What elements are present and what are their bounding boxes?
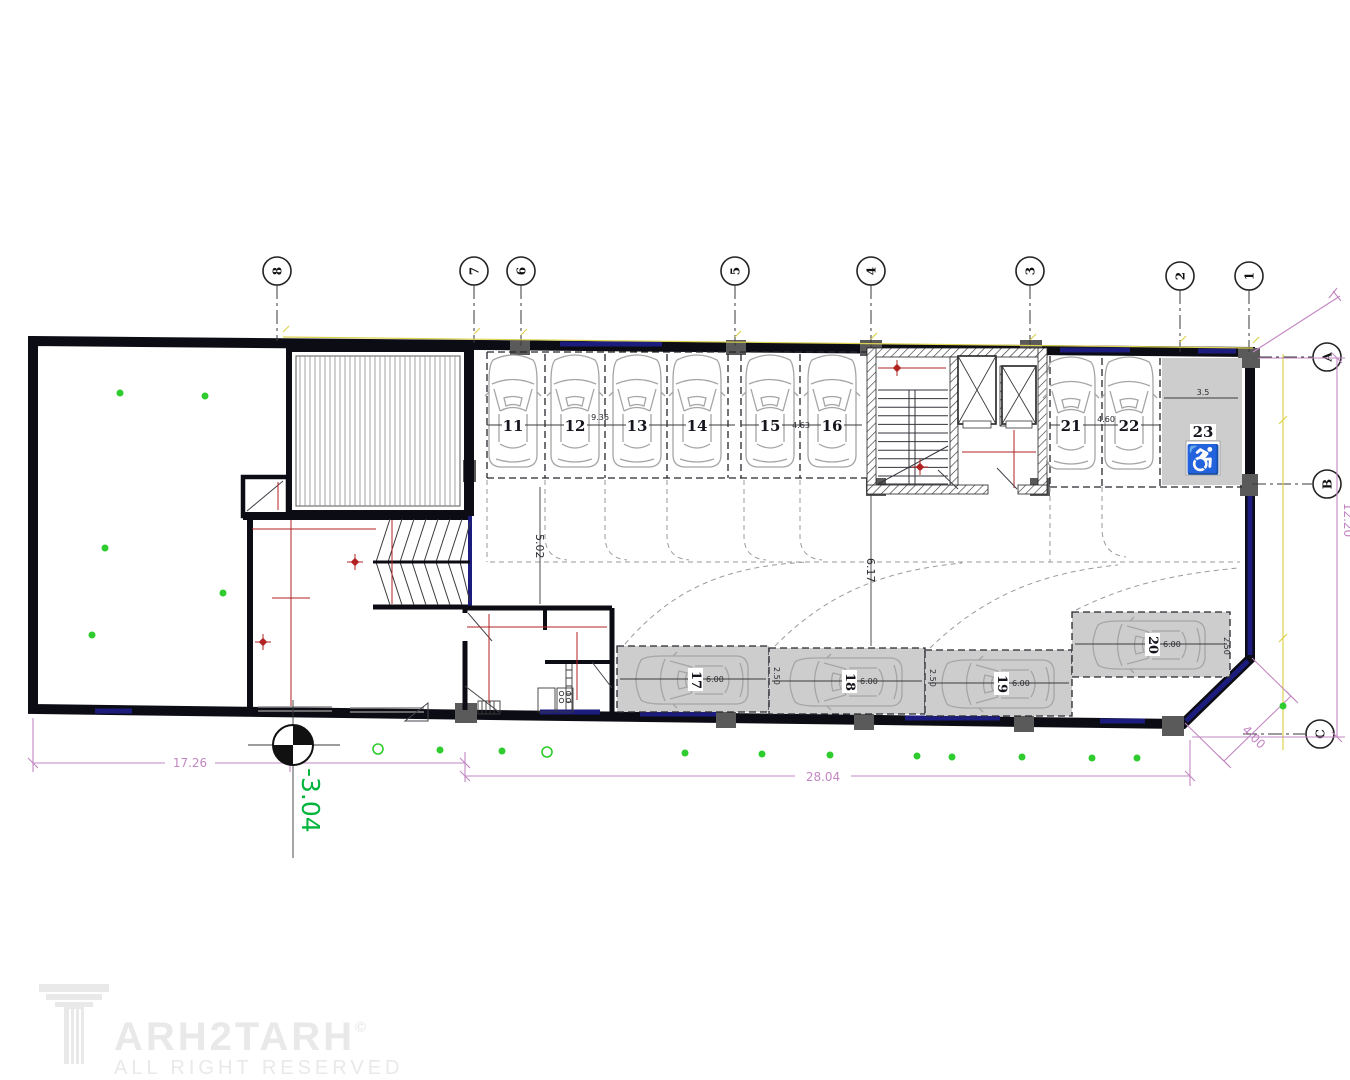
grid-label: 7 xyxy=(468,267,482,275)
spot-number: 19 xyxy=(994,675,1009,693)
spot-number: 20 xyxy=(1145,636,1160,654)
spot-number: 12 xyxy=(565,417,586,435)
spot-number: 21 xyxy=(1061,417,1082,435)
parking-top-row: 11 12 13 14 15 16 9.36 4.63 xyxy=(485,352,867,478)
parking-spot-22: 22 xyxy=(1118,417,1141,435)
parking-spot-14: 14 xyxy=(686,417,709,435)
grid-label: 6 xyxy=(515,267,529,275)
dim-stall-width: 2.50 xyxy=(1222,637,1231,655)
spot-number: 23 xyxy=(1193,423,1214,441)
parking-spot-19: 19 6.00 2.50 xyxy=(925,650,1072,716)
parking-spot-15: 15 xyxy=(759,417,782,435)
kitchen-fixtures xyxy=(538,688,573,712)
dim-bay-23: 3.5 xyxy=(1197,388,1210,397)
middle-room-dims xyxy=(252,520,376,706)
floor-plan-page: 11 12 13 14 15 16 9.36 4.63 21 22 4.60 3… xyxy=(0,0,1350,1080)
interior-dimensions: 5.02 6.17 xyxy=(533,487,877,646)
grid-label: 2 xyxy=(1174,272,1188,280)
spot-number: 14 xyxy=(687,417,708,435)
dim-bay-15-16: 4.63 xyxy=(792,421,810,430)
brand-logo-column-icon xyxy=(38,982,110,1064)
wheelchair-icon: ♿ xyxy=(1186,443,1221,476)
dim-site-right: 12.20 xyxy=(1341,503,1350,537)
grid-bubble-3: 3 xyxy=(1016,257,1044,285)
dim-stall-length: 6.00 xyxy=(706,675,724,684)
grid-axes-top: 8 7 6 5 4 3 2 1 xyxy=(263,257,1263,352)
stair-core xyxy=(867,348,1047,494)
floor-plan-canvas: 11 12 13 14 15 16 9.36 4.63 21 22 4.60 3… xyxy=(0,0,1350,1080)
car-icon xyxy=(669,355,725,467)
spot-number: 18 xyxy=(842,673,857,691)
dim-site-bottom: 28.04 xyxy=(806,770,840,784)
grid-bubble-1: 1 xyxy=(1235,262,1263,290)
spot-number: 17 xyxy=(688,671,703,689)
dim-stall-width: 2.50 xyxy=(928,669,937,687)
grid-bubble-2: 2 xyxy=(1166,262,1194,290)
grid-bubble-8: 8 xyxy=(263,257,291,285)
watermark-subtitle: ALL RIGHT RESERVED xyxy=(114,1057,403,1079)
copyright-icon: © xyxy=(355,1019,369,1036)
elevator-shaft-2 xyxy=(1002,366,1036,428)
spot-number: 13 xyxy=(627,417,648,435)
dim-stall-length: 6.00 xyxy=(860,677,878,686)
parking-spot-11: 11 xyxy=(502,417,525,435)
car-icon xyxy=(485,355,541,467)
spot-number: 11 xyxy=(503,417,524,435)
dim-stall-length: 6.00 xyxy=(1163,640,1181,649)
dim-bay-21-22: 4.60 xyxy=(1097,415,1115,424)
grid-label: 8 xyxy=(271,267,285,275)
stair-treads xyxy=(878,390,948,484)
parking-spot-16: 16 xyxy=(821,417,844,435)
upper-ramp xyxy=(289,349,467,513)
car-icon xyxy=(1101,357,1157,469)
grid-bubble-C: C xyxy=(1306,720,1334,748)
dim-site-left: 17.26 xyxy=(173,756,207,770)
watermark-brand: ARH2TARH© xyxy=(114,1008,403,1057)
grid-bubble-5: 5 xyxy=(721,257,749,285)
grid-bubble-4: 4 xyxy=(857,257,885,285)
grid-label: 3 xyxy=(1024,267,1038,275)
parking-spot-21: 21 xyxy=(1060,417,1083,435)
grid-axes-right: A B C xyxy=(1243,343,1341,748)
dim-stall-width: 2.50 xyxy=(772,667,781,685)
parking-spot-12: 12 xyxy=(564,417,587,435)
datum-marker: -3.04 xyxy=(248,700,340,858)
spot-number: 15 xyxy=(760,417,781,435)
car-icon xyxy=(742,355,798,467)
dim-stall-length: 6.00 xyxy=(1012,679,1030,688)
parking-spot-17: 17 6.00 xyxy=(617,646,769,712)
dim-bays-11-14: 9.36 xyxy=(591,413,609,422)
grid-bubble-6: 6 xyxy=(507,257,535,285)
grid-bubble-7: 7 xyxy=(460,257,488,285)
spot-number: 22 xyxy=(1119,417,1140,435)
grid-label: 5 xyxy=(729,267,743,275)
spot-number: 16 xyxy=(822,417,843,435)
car-icon xyxy=(1043,357,1099,469)
dim-core: 6.17 xyxy=(864,558,877,583)
parking-spot-20: 20 6.00 2.50 xyxy=(1072,612,1231,677)
parking-bottom-row: 17 6.00 18 6.00 2.50 19 6.00 2.50 xyxy=(617,612,1231,716)
grid-label: B xyxy=(1321,479,1335,489)
car-icon xyxy=(609,355,665,467)
chevron-ramp xyxy=(373,516,470,607)
watermark: ARH2TARH© ALL RIGHT RESERVED xyxy=(38,982,403,1079)
elevator-shaft-1 xyxy=(958,356,996,428)
dim-aisle: 5.02 xyxy=(533,534,546,559)
grid-label: 4 xyxy=(865,267,879,275)
parking-right-row: 21 22 4.60 3.5 23 ♿ xyxy=(1043,356,1242,487)
parking-spot-13: 13 xyxy=(626,417,649,435)
car-icon xyxy=(804,355,860,467)
level-value: -3.04 xyxy=(296,768,325,833)
grid-label: 1 xyxy=(1243,272,1257,280)
car-icon xyxy=(547,355,603,467)
utility-rooms xyxy=(405,608,612,721)
parking-spot-18: 18 6.00 2.50 xyxy=(769,648,925,714)
